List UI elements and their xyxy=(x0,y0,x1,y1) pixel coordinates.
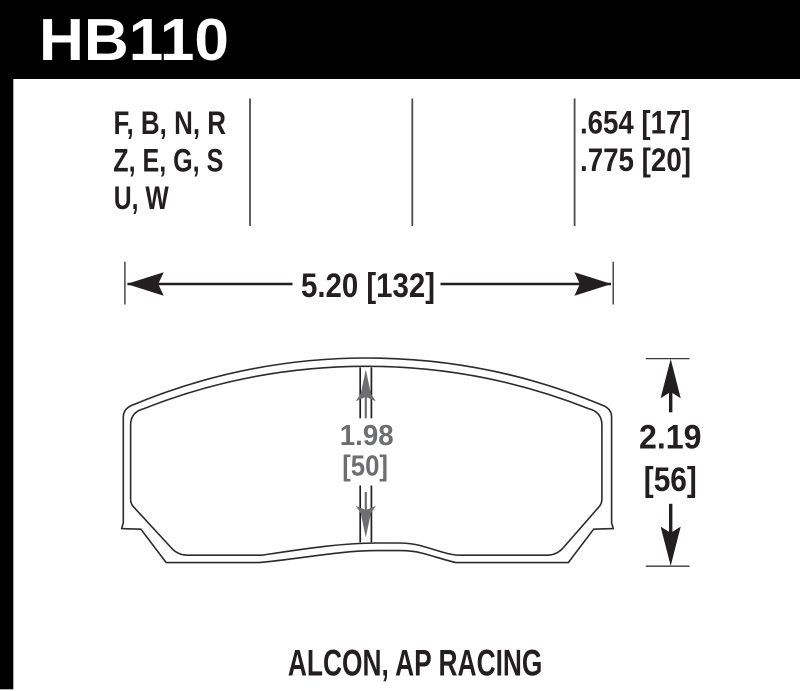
svg-text:5.20 [132]: 5.20 [132] xyxy=(301,267,435,305)
svg-text:.775 [20]: .775 [20] xyxy=(580,142,691,178)
svg-text:HB110: HB110 xyxy=(39,7,229,73)
svg-text:Z, E, G, S: Z, E, G, S xyxy=(113,143,223,179)
svg-text:1.98: 1.98 xyxy=(340,420,394,452)
svg-text:.654 [17]: .654 [17] xyxy=(580,105,691,141)
svg-text:F, B, N, R: F, B, N, R xyxy=(114,105,227,141)
svg-text:2.19: 2.19 xyxy=(639,418,702,456)
svg-text:[56]: [56] xyxy=(644,461,697,499)
svg-text:[50]: [50] xyxy=(342,451,388,483)
svg-text:ALCON, AP RACING: ALCON, AP RACING xyxy=(288,642,543,683)
svg-text:U, W: U, W xyxy=(114,180,169,216)
